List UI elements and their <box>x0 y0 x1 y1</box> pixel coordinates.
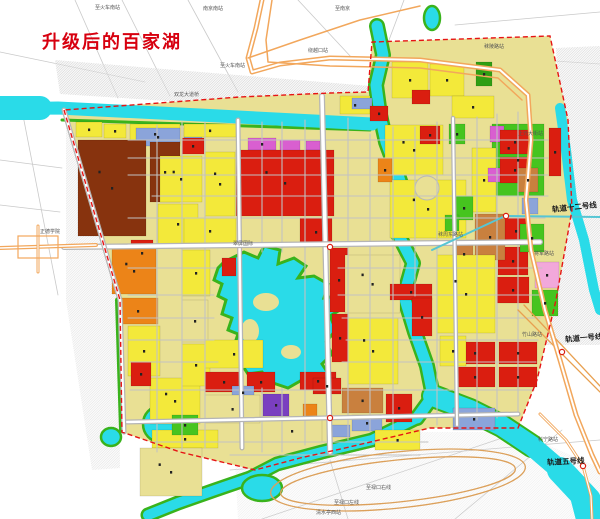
svg-text:正德学院: 正德学院 <box>40 228 60 235</box>
svg-text:至火车南站: 至火车南站 <box>95 4 120 11</box>
map-viewport: 至火车南站至火车南站南京南站至南京绕越口站秣陵路站正德学院上元大街站将军路站竹山… <box>0 0 600 519</box>
svg-text:双龙大道桥: 双龙大道桥 <box>174 91 199 98</box>
svg-text:秣周东路站: 秣周东路站 <box>438 231 463 238</box>
svg-text:竹山路站: 竹山路站 <box>522 331 542 338</box>
svg-text:清水亭西站: 清水亭西站 <box>316 509 341 516</box>
svg-text:翠屏国际: 翠屏国际 <box>233 240 253 247</box>
svg-text:南京南站: 南京南站 <box>203 5 223 12</box>
svg-text:至火车南站: 至火车南站 <box>220 62 245 69</box>
svg-text:绕越口站: 绕越口站 <box>308 47 328 54</box>
planning-map-canvas: 至火车南站至火车南站南京南站至南京绕越口站秣陵路站正德学院上元大街站将军路站竹山… <box>0 0 600 519</box>
svg-text:至禄口左线: 至禄口左线 <box>334 499 359 506</box>
svg-text:将军路站: 将军路站 <box>534 250 554 257</box>
svg-text:至南京: 至南京 <box>335 5 350 12</box>
svg-text:秣陵路站: 秣陵路站 <box>484 43 504 50</box>
svg-text:科宁路站: 科宁路站 <box>538 436 558 443</box>
svg-text:至禄口右线: 至禄口右线 <box>366 484 391 491</box>
svg-text:上元大街站: 上元大街站 <box>518 130 543 137</box>
